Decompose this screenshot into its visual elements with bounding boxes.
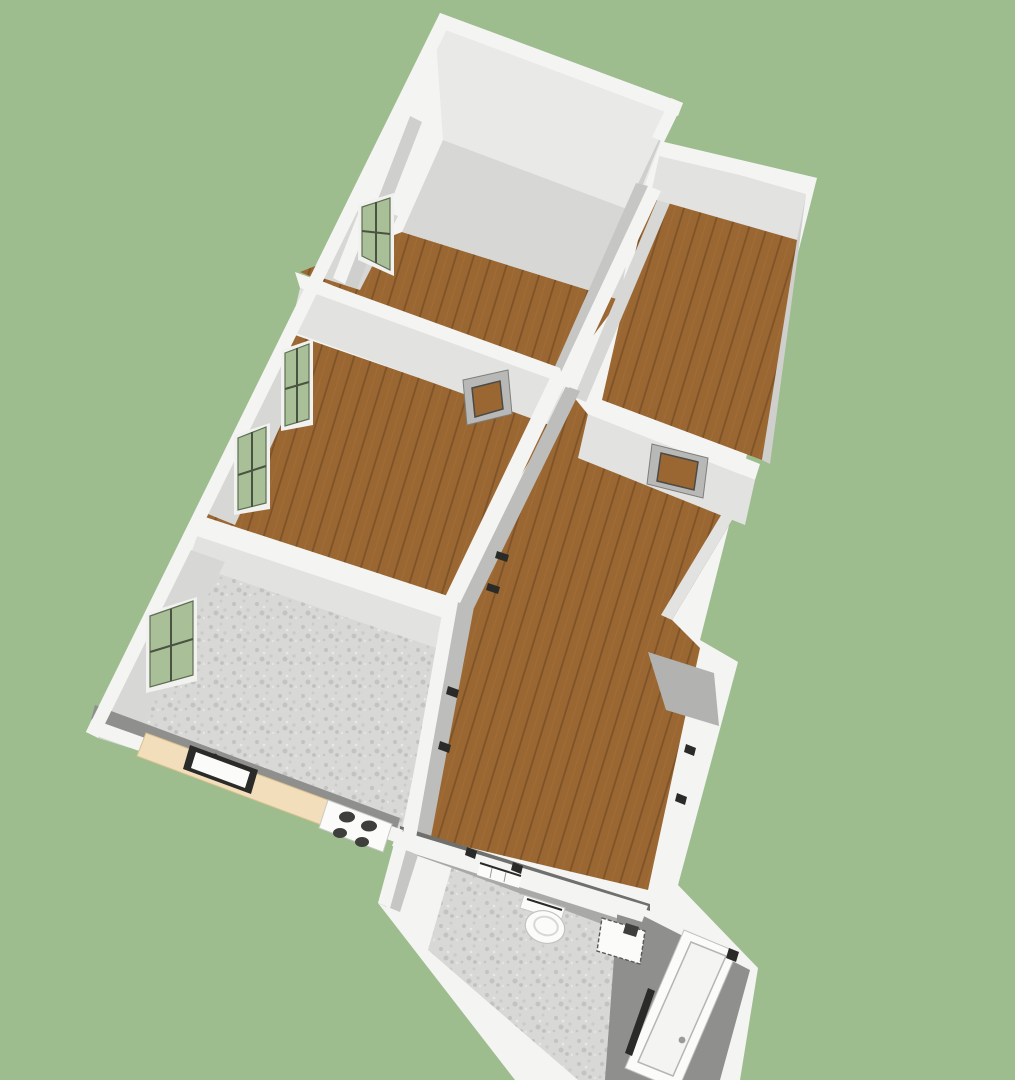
stove-burner (333, 828, 347, 838)
bathtub-drain (679, 1037, 686, 1044)
window-bedroom-lower (234, 423, 270, 515)
sink-faucet (213, 754, 218, 759)
stove-burner (339, 812, 355, 823)
floorplan-3d-scene (0, 0, 1015, 1080)
floorplan-render-canvas (0, 0, 1015, 1080)
window-bedroom-upper (281, 339, 313, 431)
window-kitchen (146, 597, 197, 693)
stove-burner (355, 837, 369, 847)
stove-burner (361, 821, 377, 832)
